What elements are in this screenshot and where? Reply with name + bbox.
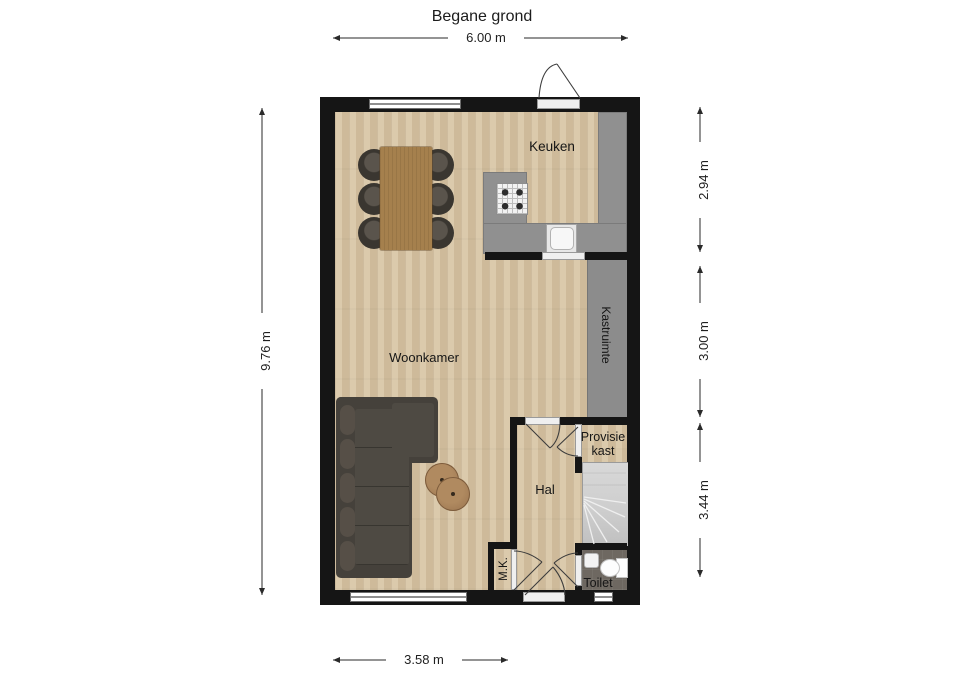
label-mk: M.K. (497, 549, 511, 589)
frontdoor-threshold (523, 592, 565, 602)
sofa-back-cushion (340, 473, 355, 503)
label-provisiekast: Provisie kast (578, 430, 628, 458)
backdoor-threshold (537, 99, 580, 109)
window-toilet (594, 592, 613, 602)
label-woonkamer: Woonkamer (384, 351, 464, 365)
washbasin-symbol (584, 553, 599, 568)
dim-top: 6.00 m (448, 30, 524, 46)
mk-door-threshold (511, 549, 517, 590)
sofa-back-cushion (340, 439, 355, 469)
wall-toilet-top (575, 543, 627, 550)
dining-table (380, 147, 432, 250)
cooktop-symbol (497, 184, 527, 214)
dim-right-bottom: 3.44 m (696, 462, 712, 538)
label-keuken: Keuken (512, 140, 592, 154)
wall-kitchen-b (585, 252, 627, 260)
wall-hal-top-b (560, 417, 627, 425)
sink-symbol (546, 224, 577, 253)
page-title: Begane grond (382, 8, 582, 26)
wall-toilet-left-a (575, 543, 582, 555)
window-top (369, 99, 461, 109)
dim-right-mid: 3.00 m (696, 303, 712, 379)
label-kastruimte: Kastruimte (599, 295, 613, 375)
wall-mk-left (488, 542, 494, 592)
wall-kitchen-a (485, 252, 542, 260)
backdoor-panel (557, 64, 580, 98)
staircase (582, 462, 628, 546)
coffee-table (436, 477, 470, 511)
sink-basin (550, 227, 574, 250)
kitchen-counter-right (598, 112, 627, 225)
dim-left: 9.76 m (258, 313, 274, 389)
wall-provisiekast-stub (575, 457, 582, 473)
sofa-back-cushion (340, 507, 355, 537)
dim-right-top: 2.94 m (696, 142, 712, 218)
wall-hal-left (510, 417, 517, 549)
label-toilet: Toilet (578, 576, 618, 590)
window-bottom (350, 592, 467, 602)
dim-bottom: 3.58 m (386, 652, 462, 668)
kitchen-pass-threshold (542, 252, 585, 260)
hal-door-threshold (525, 417, 560, 425)
backdoor-swing (539, 64, 557, 98)
sofa-back-cushion (340, 405, 355, 435)
sofa-chaise-cushion (392, 403, 434, 457)
label-hal: Hal (525, 483, 565, 497)
sofa-back-cushion (340, 541, 355, 571)
floorplan-page: Begane grond (0, 0, 960, 679)
toilet-bowl (600, 559, 620, 577)
